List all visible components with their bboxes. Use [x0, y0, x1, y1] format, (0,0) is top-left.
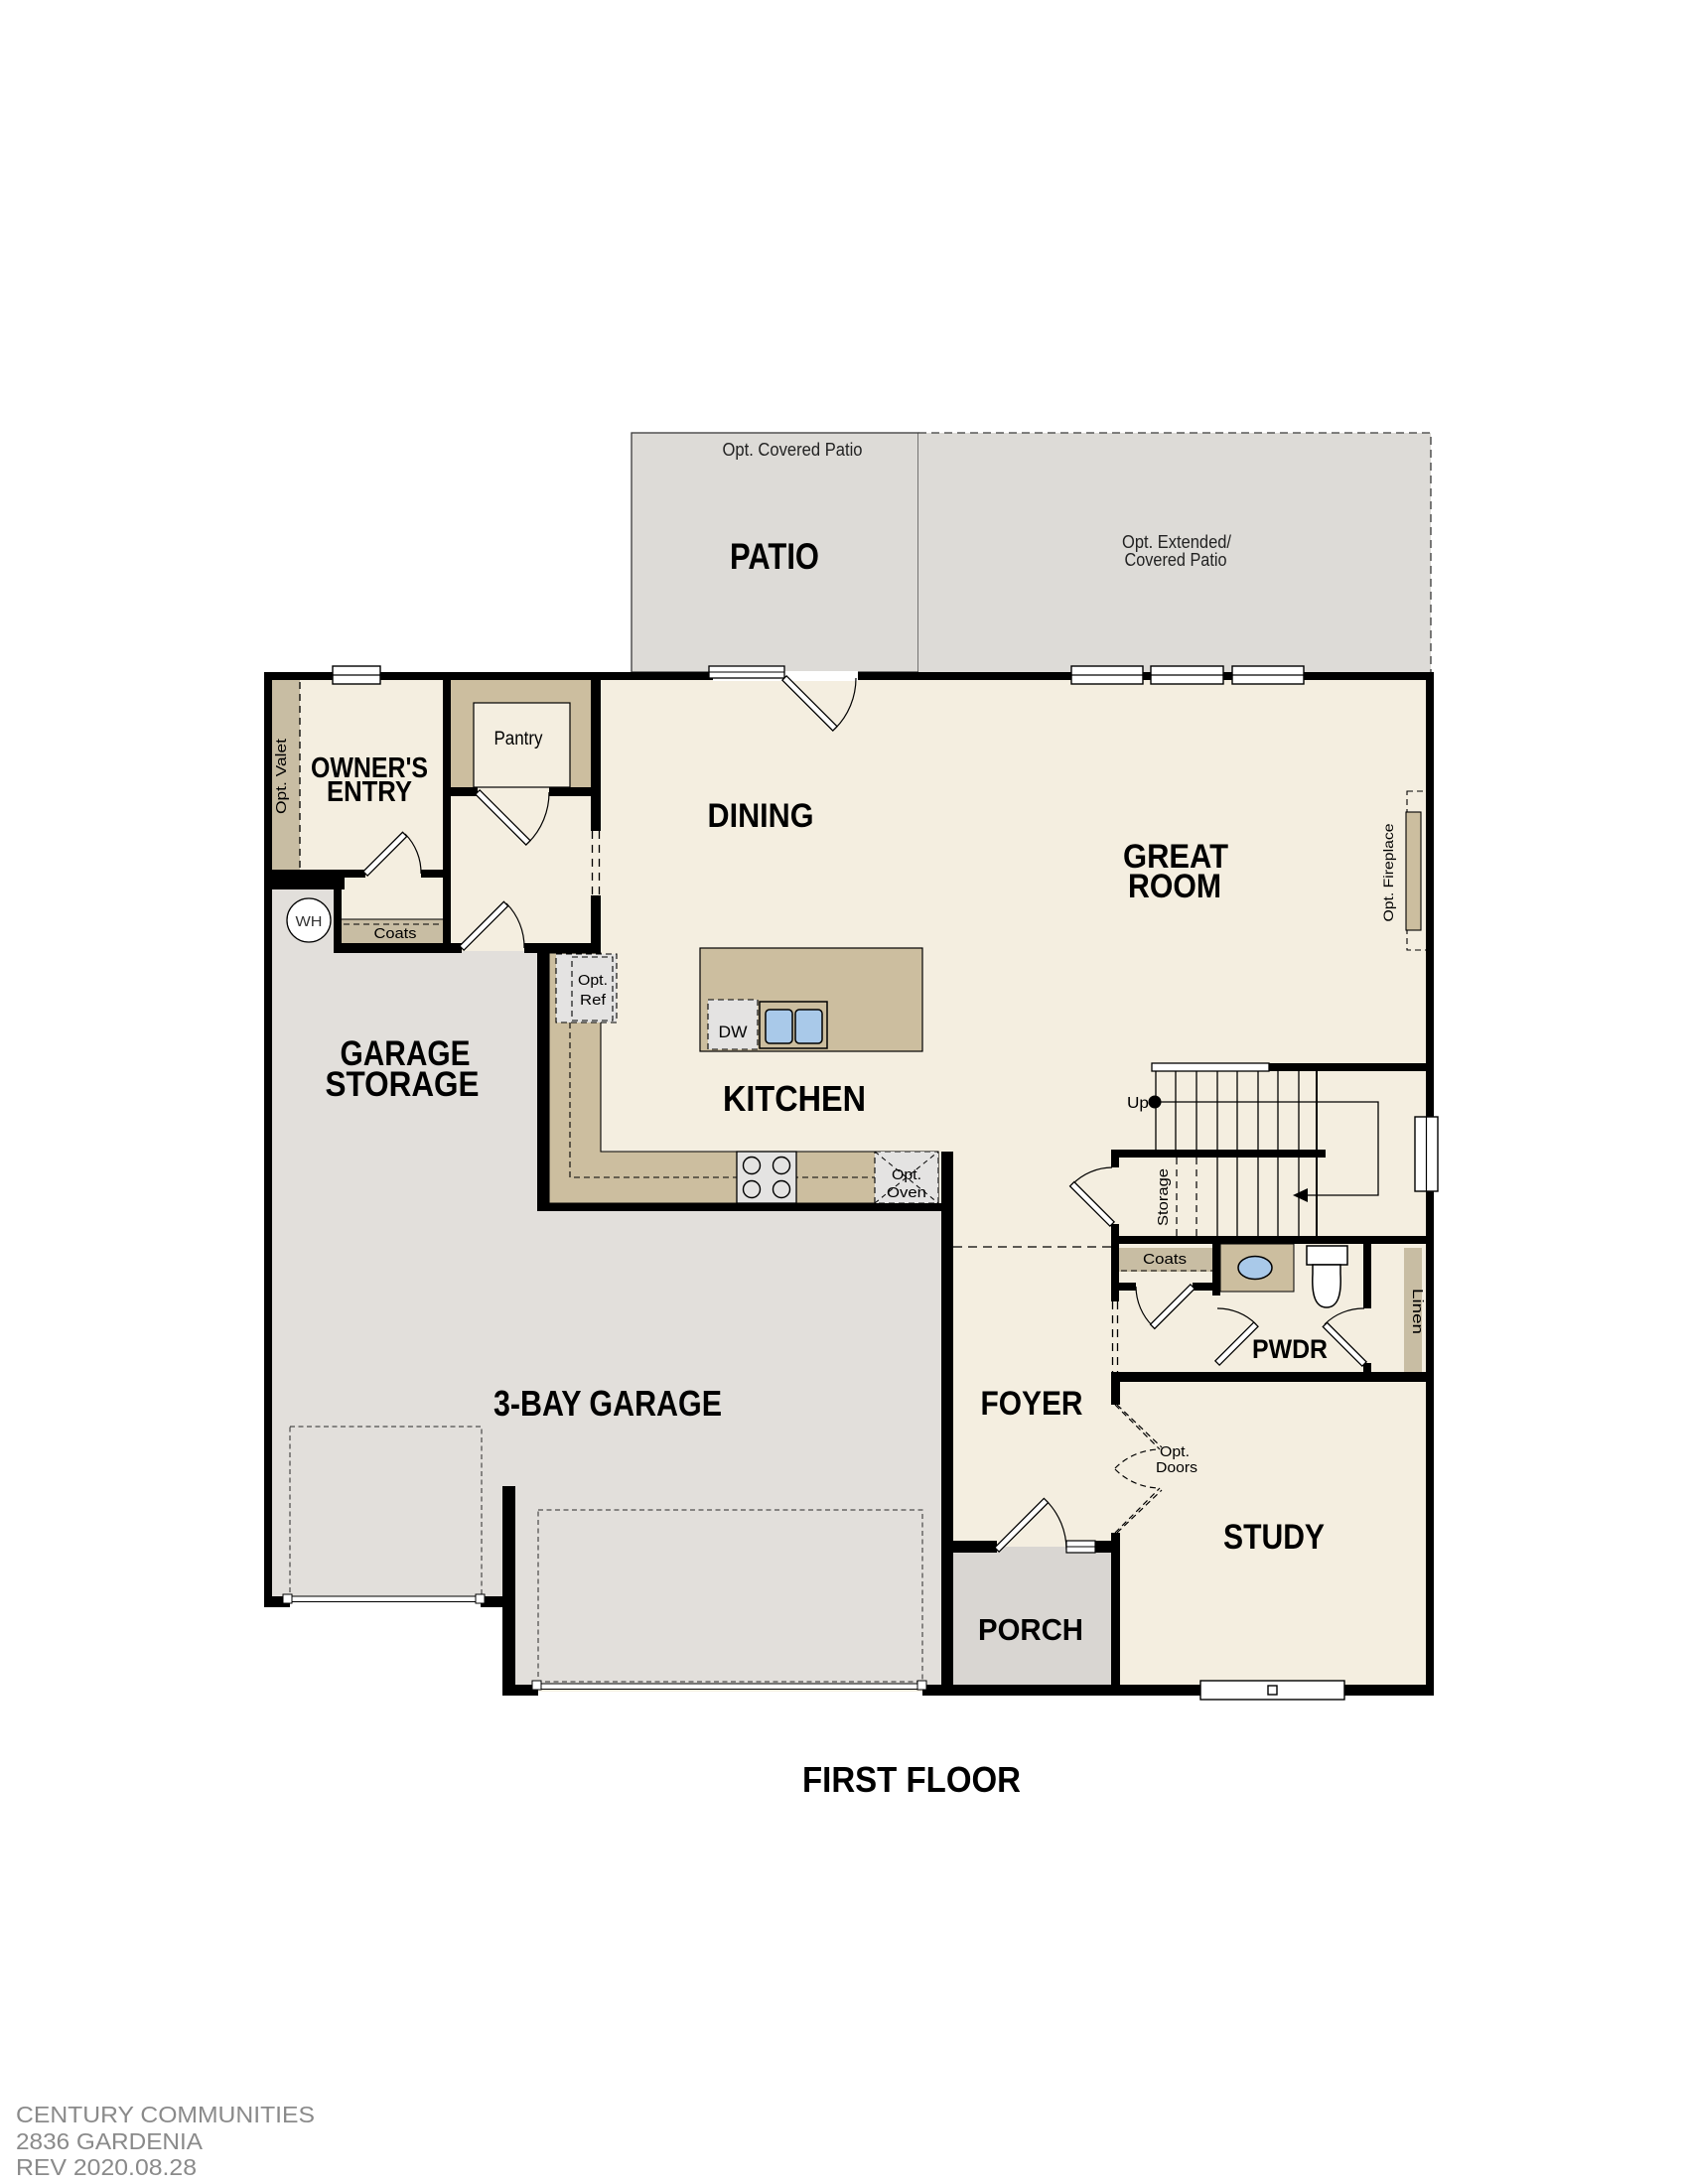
svg-text:Coats: Coats: [1143, 1252, 1187, 1268]
svg-text:FIRST FLOOR: FIRST FLOOR: [802, 1759, 1021, 1800]
svg-text:STORAGE: STORAGE: [326, 1065, 480, 1104]
svg-text:Opt. Fireplace: Opt. Fireplace: [1380, 823, 1396, 921]
svg-text:Oven: Oven: [887, 1184, 926, 1201]
svg-text:Coats: Coats: [374, 926, 417, 942]
svg-text:Opt. Valet: Opt. Valet: [273, 738, 290, 814]
svg-text:Storage: Storage: [1155, 1168, 1172, 1226]
svg-text:PWDR: PWDR: [1252, 1334, 1328, 1364]
svg-text:3-BAY GARAGE: 3-BAY GARAGE: [493, 1383, 722, 1424]
svg-text:Opt.: Opt.: [578, 972, 608, 989]
svg-text:Opt. Extended/: Opt. Extended/: [1122, 532, 1231, 552]
svg-text:DINING: DINING: [708, 797, 814, 835]
svg-text:REV 2020.08.28: REV 2020.08.28: [16, 2154, 197, 2180]
svg-text:FOYER: FOYER: [981, 1385, 1083, 1423]
svg-text:ROOM: ROOM: [1128, 868, 1221, 905]
svg-text:Linen: Linen: [1409, 1289, 1426, 1334]
svg-text:KITCHEN: KITCHEN: [723, 1078, 866, 1119]
svg-text:ENTRY: ENTRY: [327, 776, 412, 808]
svg-text:CENTURY COMMUNITIES: CENTURY COMMUNITIES: [16, 2102, 315, 2127]
svg-text:Opt.: Opt.: [892, 1166, 921, 1183]
svg-text:2836 GARDENIA: 2836 GARDENIA: [16, 2128, 204, 2154]
svg-text:PORCH: PORCH: [978, 1612, 1083, 1647]
svg-text:Pantry: Pantry: [494, 729, 543, 750]
svg-text:Covered Patio: Covered Patio: [1125, 550, 1227, 570]
svg-text:Opt. Covered Patio: Opt. Covered Patio: [723, 440, 863, 460]
svg-text:Up: Up: [1127, 1095, 1149, 1112]
svg-text:DW: DW: [719, 1023, 748, 1041]
svg-text:WH: WH: [296, 913, 323, 930]
svg-text:PATIO: PATIO: [730, 536, 819, 577]
svg-text:Ref: Ref: [580, 992, 607, 1009]
svg-text:Doors: Doors: [1156, 1459, 1197, 1476]
svg-text:STUDY: STUDY: [1223, 1518, 1325, 1557]
svg-text:Opt.: Opt.: [1160, 1443, 1190, 1460]
